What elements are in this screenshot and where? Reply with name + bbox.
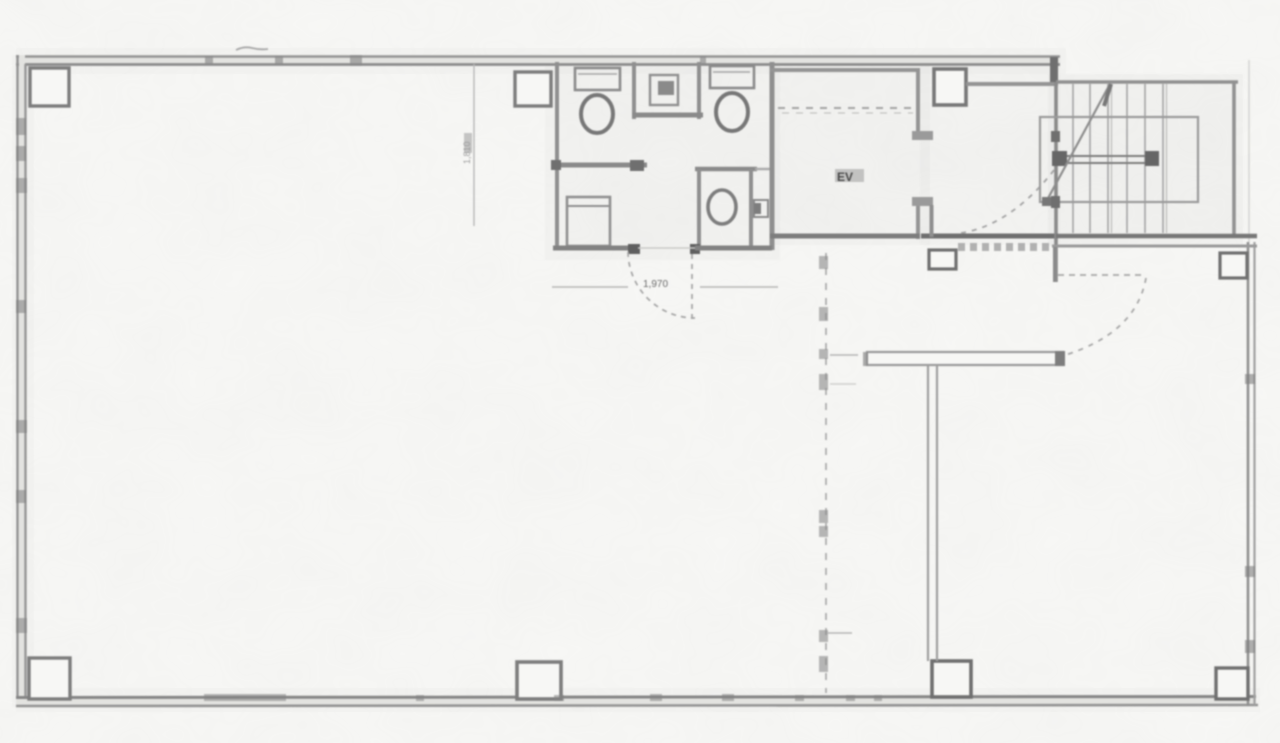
- svg-text:1,970: 1,970: [643, 279, 668, 290]
- svg-text:1,810: 1,810: [462, 141, 472, 164]
- svg-text:EV: EV: [837, 170, 853, 184]
